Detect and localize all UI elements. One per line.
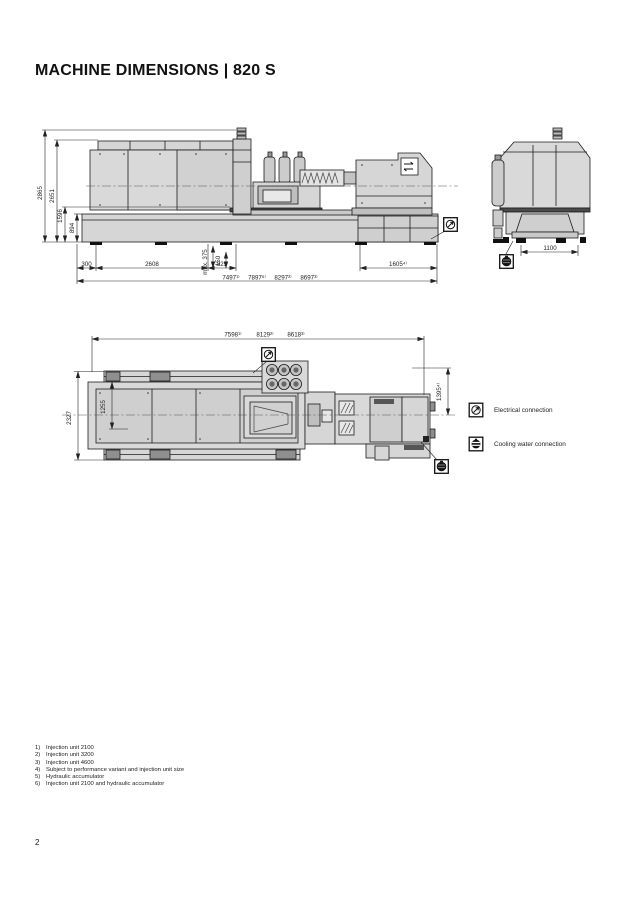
front-view: 1100 — [492, 128, 590, 268]
legend-cooling-label: Cooling water connection — [494, 441, 566, 448]
electrical-connection-icon — [468, 402, 484, 418]
top-view: 7598¹⁾ 8129²⁾ 8618³⁾ 2327 1255 1395⁴⁾ — [62, 332, 455, 474]
machine-feet — [90, 242, 436, 245]
side-dim-total-1: 7497¹⁾ — [222, 275, 240, 282]
cooling-water-connection-icon — [468, 436, 484, 452]
front-view-machine — [492, 128, 590, 243]
side-view: 2865 2651 1596 894 max. 375 150 300 2608… — [37, 128, 458, 284]
top-dim-total-3: 8618³⁾ — [287, 332, 305, 339]
footnote-5: 5)Hydraulic accumulator — [35, 774, 184, 781]
top-dim-width-inner: 1255 — [100, 400, 107, 414]
footnote-number: 2) — [35, 752, 46, 759]
signal-lamp — [553, 128, 562, 139]
side-dim-height-base: 894 — [69, 222, 76, 233]
accumulator-bottles — [264, 152, 305, 183]
side-dim-300: 300 — [81, 261, 92, 268]
footnote-text: Subject to performance variant and injec… — [46, 767, 184, 774]
front-dim-1100: 1100 — [543, 245, 557, 252]
top-view-machine — [88, 361, 435, 460]
footnote-6: 6)Injection unit 2100 and hydraulic accu… — [35, 781, 184, 788]
footnote-text: Injection unit 2100 and hydraulic accumu… — [46, 781, 164, 788]
footnote-number: 5) — [35, 774, 46, 781]
side-dim-height-mid: 1596 — [57, 209, 64, 223]
accumulator-bottles-top — [262, 361, 308, 393]
side-dim-825: 825 — [217, 261, 228, 268]
legend-electrical-label: Electrical connection — [494, 407, 553, 414]
top-dim-width-right: 1395⁴⁾ — [436, 383, 443, 401]
accumulator-bottles — [492, 155, 504, 243]
footnote-text: Injection unit 3200 — [46, 752, 94, 759]
connection-legend: Electrical connection Cooling water conn… — [468, 402, 628, 470]
footnote-2: 2)Injection unit 3200 — [35, 752, 184, 759]
legend-electrical-row: Electrical connection — [468, 402, 628, 418]
footnote-text: Injection unit 4600 — [46, 760, 94, 767]
side-dim-height-overall: 2865 — [37, 186, 44, 200]
footnote-text: Hydraulic accumulator — [46, 774, 104, 781]
side-dim-max-stroke: max. 375 — [202, 249, 209, 275]
datasheet-page: MACHINE DIMENSIONS | 820 S — [0, 0, 637, 900]
signal-lamp — [237, 128, 246, 139]
side-dim-total-4: 8697³⁾ — [300, 275, 318, 282]
front-cooling-connection-icon — [500, 241, 514, 268]
footnote-4: 4)Subject to performance variant and inj… — [35, 767, 184, 774]
side-dim-1605: 1605⁴⁾ — [389, 261, 407, 268]
footnote-3: 3)Injection unit 4600 — [35, 760, 184, 767]
footnote-text: Injection unit 2100 — [46, 745, 94, 752]
side-dim-total-2: 7897⁶⁾ — [248, 275, 266, 282]
top-dim-width-overall: 2327 — [66, 411, 73, 425]
legend-cooling-row: Cooling water connection — [468, 436, 628, 452]
footnote-number: 4) — [35, 767, 46, 774]
side-dim-total-3: 8297²⁾ — [274, 275, 292, 282]
page-number: 2 — [35, 838, 39, 847]
footnote-number: 6) — [35, 781, 46, 788]
footnote-1: 1)Injection unit 2100 — [35, 745, 184, 752]
side-view-machine — [82, 128, 438, 245]
top-dim-total-2: 8129²⁾ — [256, 332, 274, 339]
side-dim-2608: 2608 — [145, 261, 159, 268]
top-dim-total-1: 7598¹⁾ — [224, 332, 242, 339]
footnotes: 1)Injection unit 2100 2)Injection unit 3… — [35, 745, 184, 789]
footnote-number: 3) — [35, 760, 46, 767]
footnote-number: 1) — [35, 745, 46, 752]
side-dim-height-guard: 2651 — [49, 189, 56, 203]
